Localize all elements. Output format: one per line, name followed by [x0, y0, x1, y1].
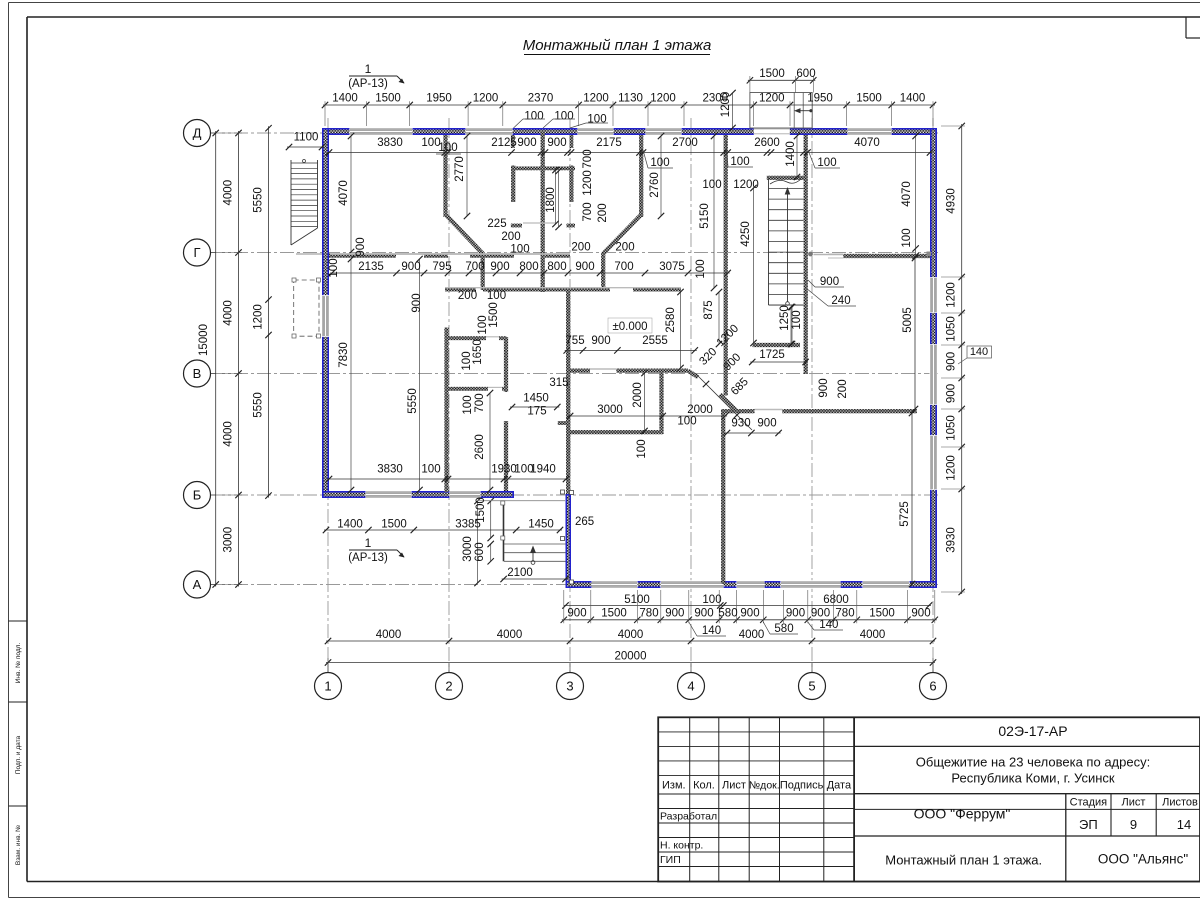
svg-text:5725: 5725 [899, 501, 911, 527]
svg-text:900: 900 [786, 607, 805, 619]
svg-text:930: 930 [731, 418, 750, 430]
svg-text:Общежитие на 23 человека по ад: Общежитие на 23 человека по адресу: [916, 755, 1150, 770]
svg-text:900: 900 [575, 261, 594, 273]
svg-text:1500: 1500 [475, 497, 487, 523]
svg-text:140: 140 [702, 625, 721, 637]
svg-text:1950: 1950 [426, 93, 452, 105]
svg-text:3930: 3930 [946, 527, 958, 553]
svg-text:240: 240 [831, 295, 850, 307]
svg-text:100: 100 [677, 416, 696, 428]
svg-text:1450: 1450 [523, 393, 549, 405]
svg-text:800: 800 [547, 261, 566, 273]
svg-text:4000: 4000 [376, 629, 402, 641]
svg-text:2370: 2370 [528, 93, 554, 105]
svg-text:5: 5 [808, 679, 815, 694]
svg-text:900: 900 [401, 261, 420, 273]
svg-text:Лист: Лист [1122, 797, 1146, 809]
svg-text:1725: 1725 [759, 349, 785, 361]
svg-text:900: 900 [818, 378, 830, 397]
svg-text:3: 3 [566, 679, 573, 694]
svg-text:1500: 1500 [488, 302, 500, 328]
svg-text:1200: 1200 [720, 92, 732, 118]
svg-text:4000: 4000 [223, 180, 235, 206]
svg-text:4070: 4070 [901, 181, 913, 207]
svg-text:Подпись: Подпись [780, 780, 824, 792]
svg-text:2700: 2700 [672, 137, 698, 149]
svg-text:780: 780 [639, 607, 658, 619]
svg-text:100: 100 [901, 228, 913, 247]
svg-text:ООО "Феррум": ООО "Феррум" [914, 806, 1011, 822]
svg-text:4000: 4000 [739, 629, 765, 641]
svg-text:315: 315 [549, 377, 568, 389]
svg-text:Н. контр.: Н. контр. [660, 840, 703, 852]
svg-text:5550: 5550 [407, 388, 419, 414]
svg-text:900: 900 [591, 335, 610, 347]
svg-text:100: 100 [462, 395, 474, 414]
svg-text:2175: 2175 [596, 137, 622, 149]
svg-text:5005: 5005 [902, 307, 914, 333]
svg-text:9: 9 [1130, 817, 1137, 832]
svg-text:600: 600 [796, 68, 815, 80]
svg-text:700: 700 [474, 393, 486, 412]
svg-text:1: 1 [365, 536, 372, 550]
svg-text:100: 100 [554, 111, 573, 123]
svg-text:5550: 5550 [253, 392, 265, 418]
svg-text:1130: 1130 [618, 93, 643, 105]
svg-text:900: 900 [411, 293, 423, 312]
svg-text:Дата: Дата [827, 780, 852, 792]
svg-text:1400: 1400 [785, 141, 797, 167]
svg-text:2125: 2125 [491, 137, 517, 149]
svg-text:1400: 1400 [900, 93, 926, 105]
svg-text:1200: 1200 [583, 93, 609, 105]
svg-text:Монтажный план 1 этажа: Монтажный план 1 этажа [523, 37, 712, 54]
svg-text:2555: 2555 [642, 335, 668, 347]
svg-text:200: 200 [571, 242, 590, 254]
svg-text:200: 200 [837, 379, 849, 398]
svg-text:4000: 4000 [618, 629, 644, 641]
svg-text:ГИП: ГИП [660, 854, 681, 866]
svg-text:Изм.: Изм. [662, 780, 686, 792]
svg-text:900: 900 [811, 607, 830, 619]
svg-text:1650: 1650 [472, 339, 484, 365]
svg-text:2770: 2770 [454, 156, 466, 182]
svg-text:Г: Г [193, 245, 200, 260]
svg-text:795: 795 [432, 261, 451, 273]
svg-text:755: 755 [565, 335, 584, 347]
svg-text:1200: 1200 [946, 455, 958, 481]
svg-text:900: 900 [665, 607, 684, 619]
svg-text:1200: 1200 [473, 93, 499, 105]
svg-text:4000: 4000 [860, 629, 886, 641]
svg-text:780: 780 [835, 607, 854, 619]
svg-text:3000: 3000 [462, 536, 474, 562]
svg-text:6: 6 [929, 679, 936, 694]
svg-text:1500: 1500 [375, 93, 401, 105]
svg-text:(АР-13): (АР-13) [348, 552, 388, 564]
svg-text:900: 900 [757, 418, 776, 430]
svg-text:900: 900 [946, 352, 958, 371]
svg-text:265: 265 [575, 516, 594, 528]
svg-text:1400: 1400 [332, 93, 358, 105]
svg-text:4000: 4000 [223, 421, 235, 447]
svg-text:7830: 7830 [338, 342, 350, 368]
svg-text:1: 1 [365, 62, 372, 76]
svg-text:580: 580 [718, 607, 737, 619]
svg-text:02Э-17-АР: 02Э-17-АР [998, 723, 1067, 739]
svg-text:875: 875 [703, 300, 715, 319]
svg-text:ЭП: ЭП [1079, 817, 1098, 832]
svg-text:А: А [193, 577, 202, 592]
svg-text:700: 700 [614, 261, 633, 273]
svg-text:Стадия: Стадия [1070, 797, 1108, 809]
svg-text:100: 100 [650, 157, 669, 169]
svg-text:700: 700 [465, 261, 484, 273]
svg-text:2000: 2000 [632, 382, 644, 408]
svg-text:20000: 20000 [615, 651, 647, 663]
svg-text:4070: 4070 [338, 180, 350, 206]
svg-text:Инв. № подл.: Инв. № подл. [15, 643, 22, 684]
svg-text:2760: 2760 [649, 172, 661, 198]
svg-text:1050: 1050 [946, 415, 958, 441]
svg-text:1250: 1250 [779, 305, 791, 331]
svg-text:100: 100 [730, 156, 749, 168]
svg-text:ООО "Альянс": ООО "Альянс" [1098, 852, 1188, 867]
svg-text:1950: 1950 [807, 93, 833, 105]
svg-text:4250: 4250 [740, 221, 752, 247]
svg-text:200: 200 [597, 203, 609, 222]
svg-text:1400: 1400 [337, 519, 363, 531]
svg-text:1500: 1500 [869, 607, 895, 619]
svg-text:4070: 4070 [854, 137, 880, 149]
svg-text:900: 900 [694, 607, 713, 619]
svg-text:225: 225 [487, 218, 506, 230]
svg-text:140: 140 [819, 619, 838, 631]
svg-text:1930: 1930 [491, 464, 517, 476]
svg-text:1050: 1050 [946, 316, 958, 342]
svg-text:(АР-13): (АР-13) [348, 78, 388, 90]
svg-text:200: 200 [458, 290, 477, 302]
svg-text:140: 140 [970, 346, 988, 358]
svg-text:100: 100 [817, 157, 836, 169]
svg-text:1200: 1200 [946, 282, 958, 308]
svg-text:100: 100 [510, 244, 529, 256]
svg-text:Взам. инв. №: Взам. инв. № [15, 825, 22, 865]
svg-text:15000: 15000 [198, 324, 210, 356]
svg-text:900: 900 [517, 137, 536, 149]
svg-text:±0.000: ±0.000 [612, 321, 647, 333]
svg-text:900: 900 [911, 607, 930, 619]
svg-text:1200: 1200 [759, 93, 785, 105]
svg-text:800: 800 [519, 261, 538, 273]
svg-text:14: 14 [1177, 817, 1191, 832]
svg-text:3000: 3000 [223, 527, 235, 553]
svg-text:Республика Коми, г. Усинск: Республика Коми, г. Усинск [951, 771, 1114, 786]
svg-text:100: 100 [438, 142, 457, 154]
svg-text:100: 100 [702, 594, 721, 606]
svg-text:900: 900 [820, 276, 839, 288]
svg-text:1500: 1500 [759, 68, 785, 80]
svg-text:580: 580 [774, 623, 793, 635]
svg-text:100: 100 [421, 464, 440, 476]
svg-text:100: 100 [695, 259, 707, 278]
svg-text:1: 1 [324, 679, 331, 694]
svg-text:4: 4 [687, 679, 694, 694]
svg-text:Лист: Лист [722, 780, 746, 792]
svg-text:2000: 2000 [687, 404, 713, 416]
svg-text:900: 900 [355, 237, 367, 256]
svg-text:5550: 5550 [253, 187, 265, 213]
svg-text:3000: 3000 [597, 404, 623, 416]
svg-text:2580: 2580 [665, 307, 677, 333]
svg-text:1800: 1800 [545, 187, 557, 213]
svg-text:2600: 2600 [754, 137, 780, 149]
svg-text:1940: 1940 [530, 464, 556, 476]
svg-text:2135: 2135 [358, 261, 384, 273]
svg-text:100: 100 [524, 111, 543, 123]
svg-text:Кол.: Кол. [693, 780, 715, 792]
svg-text:Разработал: Разработал [660, 810, 717, 822]
svg-text:600: 600 [474, 542, 486, 561]
svg-text:100: 100 [587, 114, 606, 126]
svg-text:200: 200 [501, 231, 520, 243]
svg-text:900: 900 [946, 384, 958, 403]
svg-text:Подп. и дата: Подп. и дата [15, 735, 22, 774]
svg-text:4930: 4930 [946, 188, 958, 214]
svg-text:900: 900 [490, 261, 509, 273]
svg-text:3075: 3075 [659, 261, 685, 273]
svg-text:1200: 1200 [253, 304, 265, 330]
svg-text:700: 700 [582, 202, 594, 221]
svg-text:2100: 2100 [507, 567, 533, 579]
svg-text:900: 900 [567, 607, 586, 619]
svg-text:1500: 1500 [601, 607, 627, 619]
svg-text:200: 200 [615, 242, 634, 254]
svg-text:1100: 1100 [294, 132, 319, 144]
svg-text:Д: Д [193, 126, 202, 141]
svg-text:100: 100 [702, 179, 721, 191]
svg-text:4000: 4000 [497, 629, 523, 641]
svg-text:4000: 4000 [223, 300, 235, 326]
svg-text:6800: 6800 [823, 594, 849, 606]
svg-text:1500: 1500 [381, 519, 407, 531]
svg-text:900: 900 [740, 607, 759, 619]
svg-text:Б: Б [193, 488, 202, 503]
svg-text:100: 100 [791, 310, 803, 329]
svg-text:№док.: №док. [749, 780, 780, 792]
svg-text:3830: 3830 [377, 137, 403, 149]
svg-text:1500: 1500 [856, 93, 882, 105]
svg-text:Листов: Листов [1162, 797, 1198, 809]
svg-text:100: 100 [636, 439, 648, 458]
svg-text:3830: 3830 [377, 464, 403, 476]
svg-text:1200: 1200 [582, 170, 594, 196]
svg-text:В: В [193, 366, 202, 381]
svg-text:2600: 2600 [474, 434, 486, 460]
svg-text:100: 100 [328, 258, 340, 277]
svg-text:100: 100 [487, 290, 506, 302]
svg-text:700: 700 [582, 149, 594, 168]
svg-text:900: 900 [547, 137, 566, 149]
svg-text:1200: 1200 [650, 93, 676, 105]
svg-text:5150: 5150 [699, 203, 711, 229]
svg-text:1200: 1200 [733, 179, 759, 191]
svg-text:1450: 1450 [528, 519, 554, 531]
svg-text:2: 2 [445, 679, 452, 694]
svg-text:Монтажный план 1 этажа.: Монтажный план 1 этажа. [885, 853, 1042, 868]
